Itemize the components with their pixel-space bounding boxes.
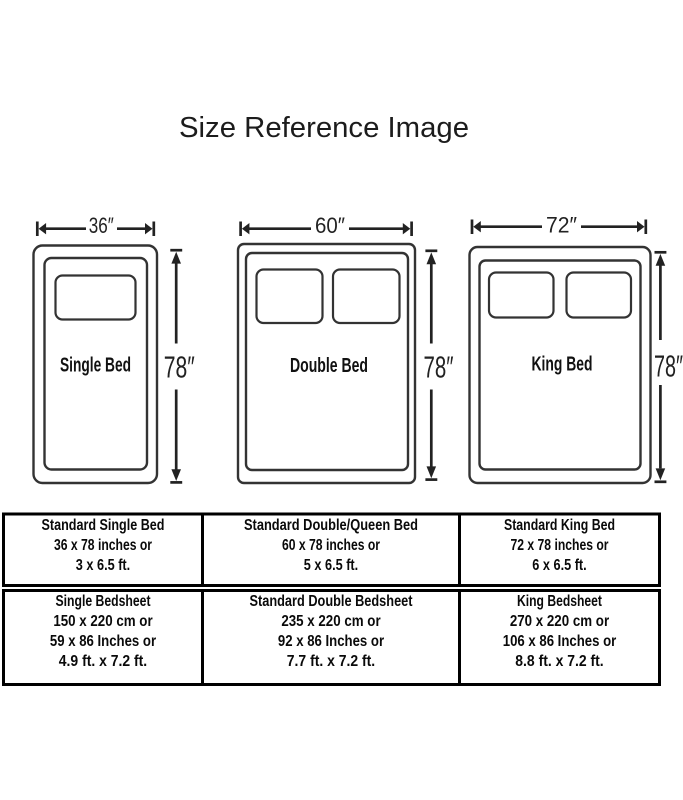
svg-text:60″: 60″ — [315, 213, 345, 238]
svg-text:Single Bed: Single Bed — [60, 355, 131, 377]
svg-text:78″: 78″ — [424, 350, 454, 385]
svg-text:78″: 78″ — [654, 349, 683, 384]
svg-text:36″: 36″ — [89, 213, 114, 238]
svg-text:72″: 72″ — [546, 213, 577, 238]
svg-text:78″: 78″ — [164, 350, 195, 385]
svg-text:King Bed: King Bed — [532, 354, 593, 376]
svg-text:Size Reference Image: Size Reference Image — [179, 112, 469, 144]
svg-text:Double Bed: Double Bed — [290, 355, 368, 377]
